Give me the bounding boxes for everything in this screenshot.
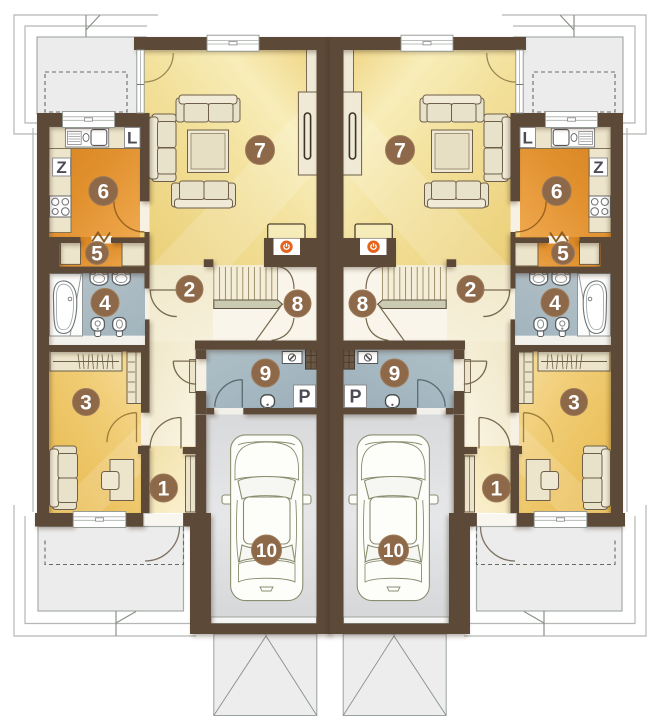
svg-text:4: 4 — [549, 292, 561, 315]
svg-text:Z: Z — [593, 158, 603, 177]
svg-text:5: 5 — [91, 243, 103, 266]
svg-text:P: P — [349, 387, 361, 407]
svg-text:9: 9 — [389, 363, 401, 386]
svg-text:Z: Z — [56, 158, 66, 177]
svg-text:5: 5 — [557, 243, 569, 266]
svg-text:4: 4 — [99, 292, 111, 315]
svg-text:1: 1 — [491, 478, 503, 501]
svg-text:6: 6 — [97, 181, 109, 204]
svg-text:7: 7 — [254, 140, 266, 163]
svg-text:8: 8 — [357, 293, 369, 316]
svg-text:L: L — [523, 129, 533, 148]
svg-text:3: 3 — [80, 392, 92, 415]
svg-text:6: 6 — [551, 181, 563, 204]
svg-text:8: 8 — [292, 293, 304, 316]
svg-text:3: 3 — [568, 392, 580, 415]
svg-text:2: 2 — [184, 279, 196, 302]
svg-text:L: L — [127, 129, 137, 148]
svg-text:10: 10 — [383, 541, 404, 562]
svg-text:2: 2 — [465, 279, 477, 302]
svg-text:7: 7 — [394, 140, 406, 163]
svg-text:1: 1 — [158, 478, 170, 501]
svg-text:P: P — [298, 387, 310, 407]
svg-text:10: 10 — [256, 541, 277, 562]
svg-text:9: 9 — [260, 363, 272, 386]
